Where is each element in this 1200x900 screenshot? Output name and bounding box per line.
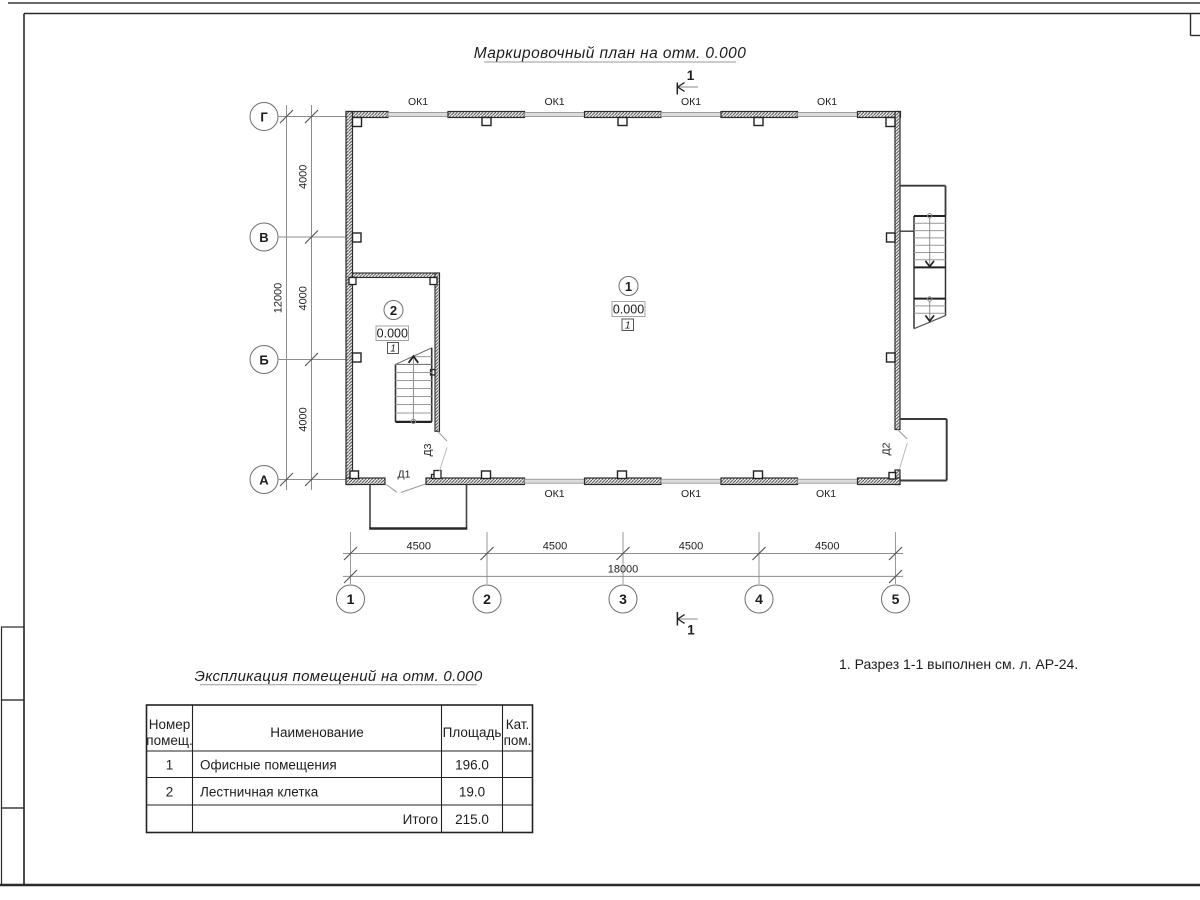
svg-text:1: 1 xyxy=(687,68,695,83)
svg-text:Кат.: Кат. xyxy=(506,717,530,732)
svg-text:4500: 4500 xyxy=(407,541,431,553)
svg-text:Площадь: Площадь xyxy=(443,725,502,740)
svg-text:3: 3 xyxy=(619,591,627,607)
svg-text:1: 1 xyxy=(625,279,632,294)
svg-text:Наименование: Наименование xyxy=(270,725,364,740)
svg-text:215.0: 215.0 xyxy=(455,812,489,827)
svg-text:ОК1: ОК1 xyxy=(544,488,564,500)
svg-text:196.0: 196.0 xyxy=(455,758,489,773)
svg-text:1: 1 xyxy=(390,344,396,355)
svg-text:2: 2 xyxy=(166,785,174,800)
svg-text:2: 2 xyxy=(483,591,491,607)
svg-text:4500: 4500 xyxy=(543,541,567,553)
svg-text:1. Разрез 1-1 выполнен см. л.: 1. Разрез 1-1 выполнен см. л. АР-24. xyxy=(839,656,1078,672)
svg-text:Маркировочный план на отм. 0.0: Маркировочный план на отм. 0.000 xyxy=(474,45,746,62)
svg-text:19.0: 19.0 xyxy=(459,785,485,800)
svg-text:Д3: Д3 xyxy=(422,443,434,456)
svg-text:ОК1: ОК1 xyxy=(408,96,428,108)
svg-text:4000: 4000 xyxy=(298,286,310,310)
svg-text:0.000: 0.000 xyxy=(613,302,644,316)
svg-text:В: В xyxy=(259,230,268,245)
svg-text:4500: 4500 xyxy=(815,541,839,553)
svg-text:ОК1: ОК1 xyxy=(817,96,837,108)
svg-text:помещ.: помещ. xyxy=(146,733,192,748)
svg-text:Экспликация помещений на отм.: Экспликация помещений на отм. 0.000 xyxy=(195,668,483,685)
svg-text:ОК1: ОК1 xyxy=(816,488,836,500)
svg-text:1: 1 xyxy=(687,623,695,638)
svg-text:Д1: Д1 xyxy=(398,469,411,481)
svg-text:5: 5 xyxy=(892,591,900,607)
svg-text:4500: 4500 xyxy=(679,541,703,553)
svg-text:Номер: Номер xyxy=(149,717,191,732)
svg-text:18000: 18000 xyxy=(608,564,639,576)
svg-text:1: 1 xyxy=(625,320,631,331)
svg-text:пом.: пом. xyxy=(504,733,532,748)
svg-text:0.000: 0.000 xyxy=(377,327,408,341)
svg-text:2: 2 xyxy=(390,303,397,318)
svg-text:ОК1: ОК1 xyxy=(681,96,701,108)
svg-text:ОК1: ОК1 xyxy=(681,488,701,500)
svg-text:12000: 12000 xyxy=(273,283,285,314)
svg-text:Офисные помещения: Офисные помещения xyxy=(200,758,337,773)
svg-text:А: А xyxy=(259,473,269,488)
svg-text:Д2: Д2 xyxy=(881,442,893,455)
svg-text:Б: Б xyxy=(259,353,268,368)
svg-text:4000: 4000 xyxy=(298,165,310,189)
svg-text:4: 4 xyxy=(755,591,763,607)
svg-text:1: 1 xyxy=(166,758,174,773)
svg-text:4000: 4000 xyxy=(298,407,310,431)
svg-text:Итого: Итого xyxy=(403,812,438,827)
svg-text:ОК1: ОК1 xyxy=(544,96,564,108)
svg-text:Лестничная клетка: Лестничная клетка xyxy=(200,785,319,800)
svg-text:Г: Г xyxy=(260,110,268,125)
svg-text:1: 1 xyxy=(347,591,355,607)
